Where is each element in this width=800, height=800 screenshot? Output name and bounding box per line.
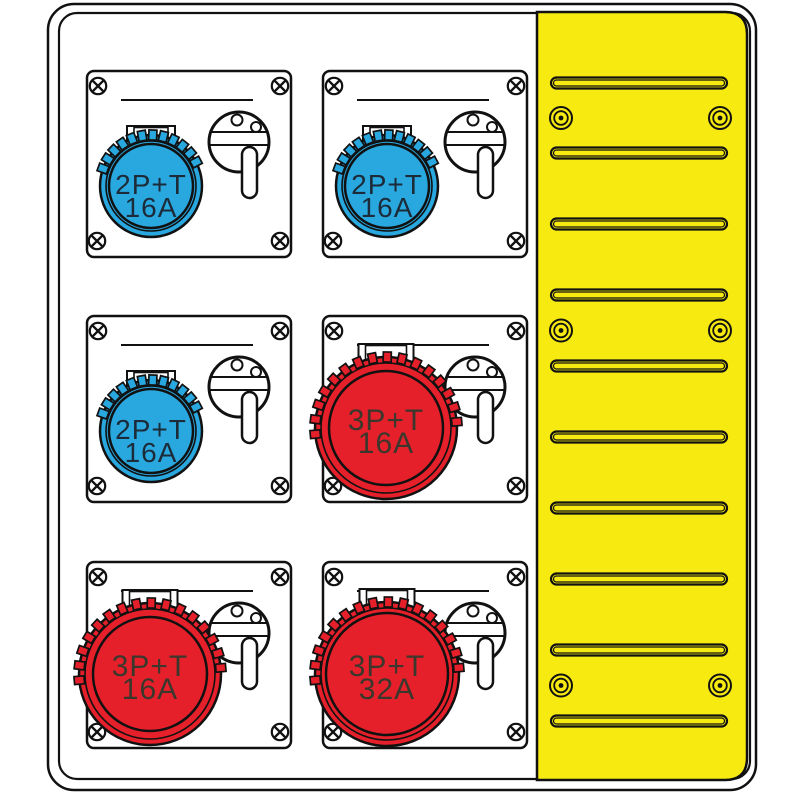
- switch-lever: [478, 638, 493, 689]
- corner-screw-icon: [89, 478, 105, 494]
- corner-screw-icon: [508, 724, 524, 740]
- switch-pin-icon: [232, 115, 243, 126]
- collar-tooth: [398, 598, 408, 610]
- collar-tooth: [161, 599, 171, 611]
- socket-label-rating: 16A: [125, 437, 178, 468]
- socket-module-bottom-right: 3P+T32A: [310, 562, 527, 748]
- rivet-icon: [550, 675, 572, 697]
- corner-screw-icon: [90, 323, 106, 339]
- vent-slot: [551, 219, 727, 230]
- rivet-icon: [550, 320, 572, 342]
- collar-tooth: [215, 663, 226, 672]
- collar-tooth: [368, 598, 378, 609]
- rivet-icon: [709, 107, 731, 129]
- distribution-board: 2P+T16A2P+T16A2P+T16A3P+T16A3P+T16A3P+T3…: [0, 0, 800, 800]
- corner-screw-icon: [272, 478, 288, 494]
- switch-pin-icon: [251, 367, 261, 377]
- vent-slot: [551, 645, 727, 656]
- corner-screw-icon: [272, 323, 288, 339]
- corner-screw-icon: [508, 323, 524, 339]
- corner-screw-icon: [89, 233, 105, 249]
- socket-label-rating: 16A: [125, 192, 178, 223]
- collar-tooth: [450, 648, 462, 659]
- rivet-icon: [709, 320, 731, 342]
- switch-lever: [478, 147, 493, 198]
- vent-slot: [551, 503, 727, 514]
- corner-screw-icon: [325, 233, 341, 249]
- collar-tooth: [212, 648, 224, 659]
- corner-screw-icon: [508, 478, 524, 494]
- corner-screw-icon: [272, 569, 288, 585]
- socket-module-top-right: 2P+T16A: [323, 71, 527, 257]
- socket-module-top-left: 2P+T16A: [87, 71, 291, 257]
- corner-screw-icon: [326, 78, 342, 94]
- collar-tooth: [383, 352, 391, 362]
- collar-tooth: [451, 417, 462, 426]
- collar-tooth: [373, 130, 383, 141]
- collar-tooth: [158, 131, 168, 143]
- collar-tooth: [453, 663, 464, 672]
- collar-tooth: [397, 353, 407, 365]
- distribution-board-illustration: 2P+T16A2P+T16A2P+T16A3P+T16A3P+T16A3P+T3…: [0, 0, 800, 800]
- corner-screw-icon: [508, 233, 524, 249]
- collar-tooth: [448, 402, 460, 413]
- collar-tooth: [147, 598, 155, 608]
- corner-screw-icon: [272, 78, 288, 94]
- collar-tooth: [385, 130, 393, 140]
- switch-pin-icon: [468, 606, 479, 617]
- collar-tooth: [310, 661, 321, 670]
- collar-tooth: [310, 430, 321, 439]
- rivet-icon: [550, 107, 572, 129]
- corner-screw-icon: [508, 78, 524, 94]
- corner-screw-icon: [326, 323, 342, 339]
- collar-tooth: [74, 661, 85, 670]
- socket-label-rating: 16A: [122, 673, 178, 706]
- corner-screw-icon: [272, 724, 288, 740]
- switch-lever: [242, 147, 257, 198]
- collar-tooth: [132, 599, 142, 610]
- vent-slot: [551, 574, 727, 585]
- collar-tooth: [368, 353, 378, 364]
- socket-label-rating: 16A: [361, 192, 414, 223]
- socket-label-rating: 32A: [359, 673, 415, 706]
- collar-tooth: [394, 131, 404, 143]
- collar-tooth: [74, 676, 85, 685]
- collar-tooth: [384, 597, 392, 607]
- vent-slot: [551, 432, 727, 443]
- switch-lever: [242, 392, 257, 443]
- socket-module-middle-right: 3P+T16A: [310, 316, 527, 502]
- corner-screw-icon: [326, 569, 342, 585]
- corner-screw-icon: [90, 569, 106, 585]
- vent-slot: [551, 716, 727, 727]
- switch-pin-icon: [487, 122, 497, 132]
- switch-lever: [242, 638, 257, 689]
- vent-slot: [551, 290, 727, 301]
- rivet-icon: [709, 675, 731, 697]
- switch-pin-icon: [487, 367, 497, 377]
- collar-tooth: [137, 130, 147, 141]
- corner-screw-icon: [272, 233, 288, 249]
- switch-lever: [478, 392, 493, 443]
- switch-pin-icon: [251, 122, 261, 132]
- vent-slot: [551, 361, 727, 372]
- collar-tooth: [149, 375, 157, 385]
- socket-module-middle-left: 2P+T16A: [87, 316, 291, 502]
- vent-slot: [551, 148, 727, 159]
- collar-tooth: [158, 376, 168, 388]
- switch-pin-icon: [468, 360, 479, 371]
- socket-module-bottom-left: 3P+T16A: [74, 562, 291, 748]
- switch-pin-icon: [232, 360, 243, 371]
- socket-label-rating: 16A: [358, 427, 414, 460]
- collar-tooth: [310, 676, 321, 685]
- collar-tooth: [149, 130, 157, 140]
- collar-tooth: [137, 375, 147, 386]
- vent-slot: [551, 78, 727, 89]
- switch-pin-icon: [487, 613, 497, 623]
- corner-screw-icon: [90, 78, 106, 94]
- switch-pin-icon: [251, 613, 261, 623]
- corner-screw-icon: [508, 569, 524, 585]
- switch-pin-icon: [468, 115, 479, 126]
- collar-tooth: [310, 415, 321, 424]
- vent-panel: [537, 12, 747, 780]
- switch-pin-icon: [232, 606, 243, 617]
